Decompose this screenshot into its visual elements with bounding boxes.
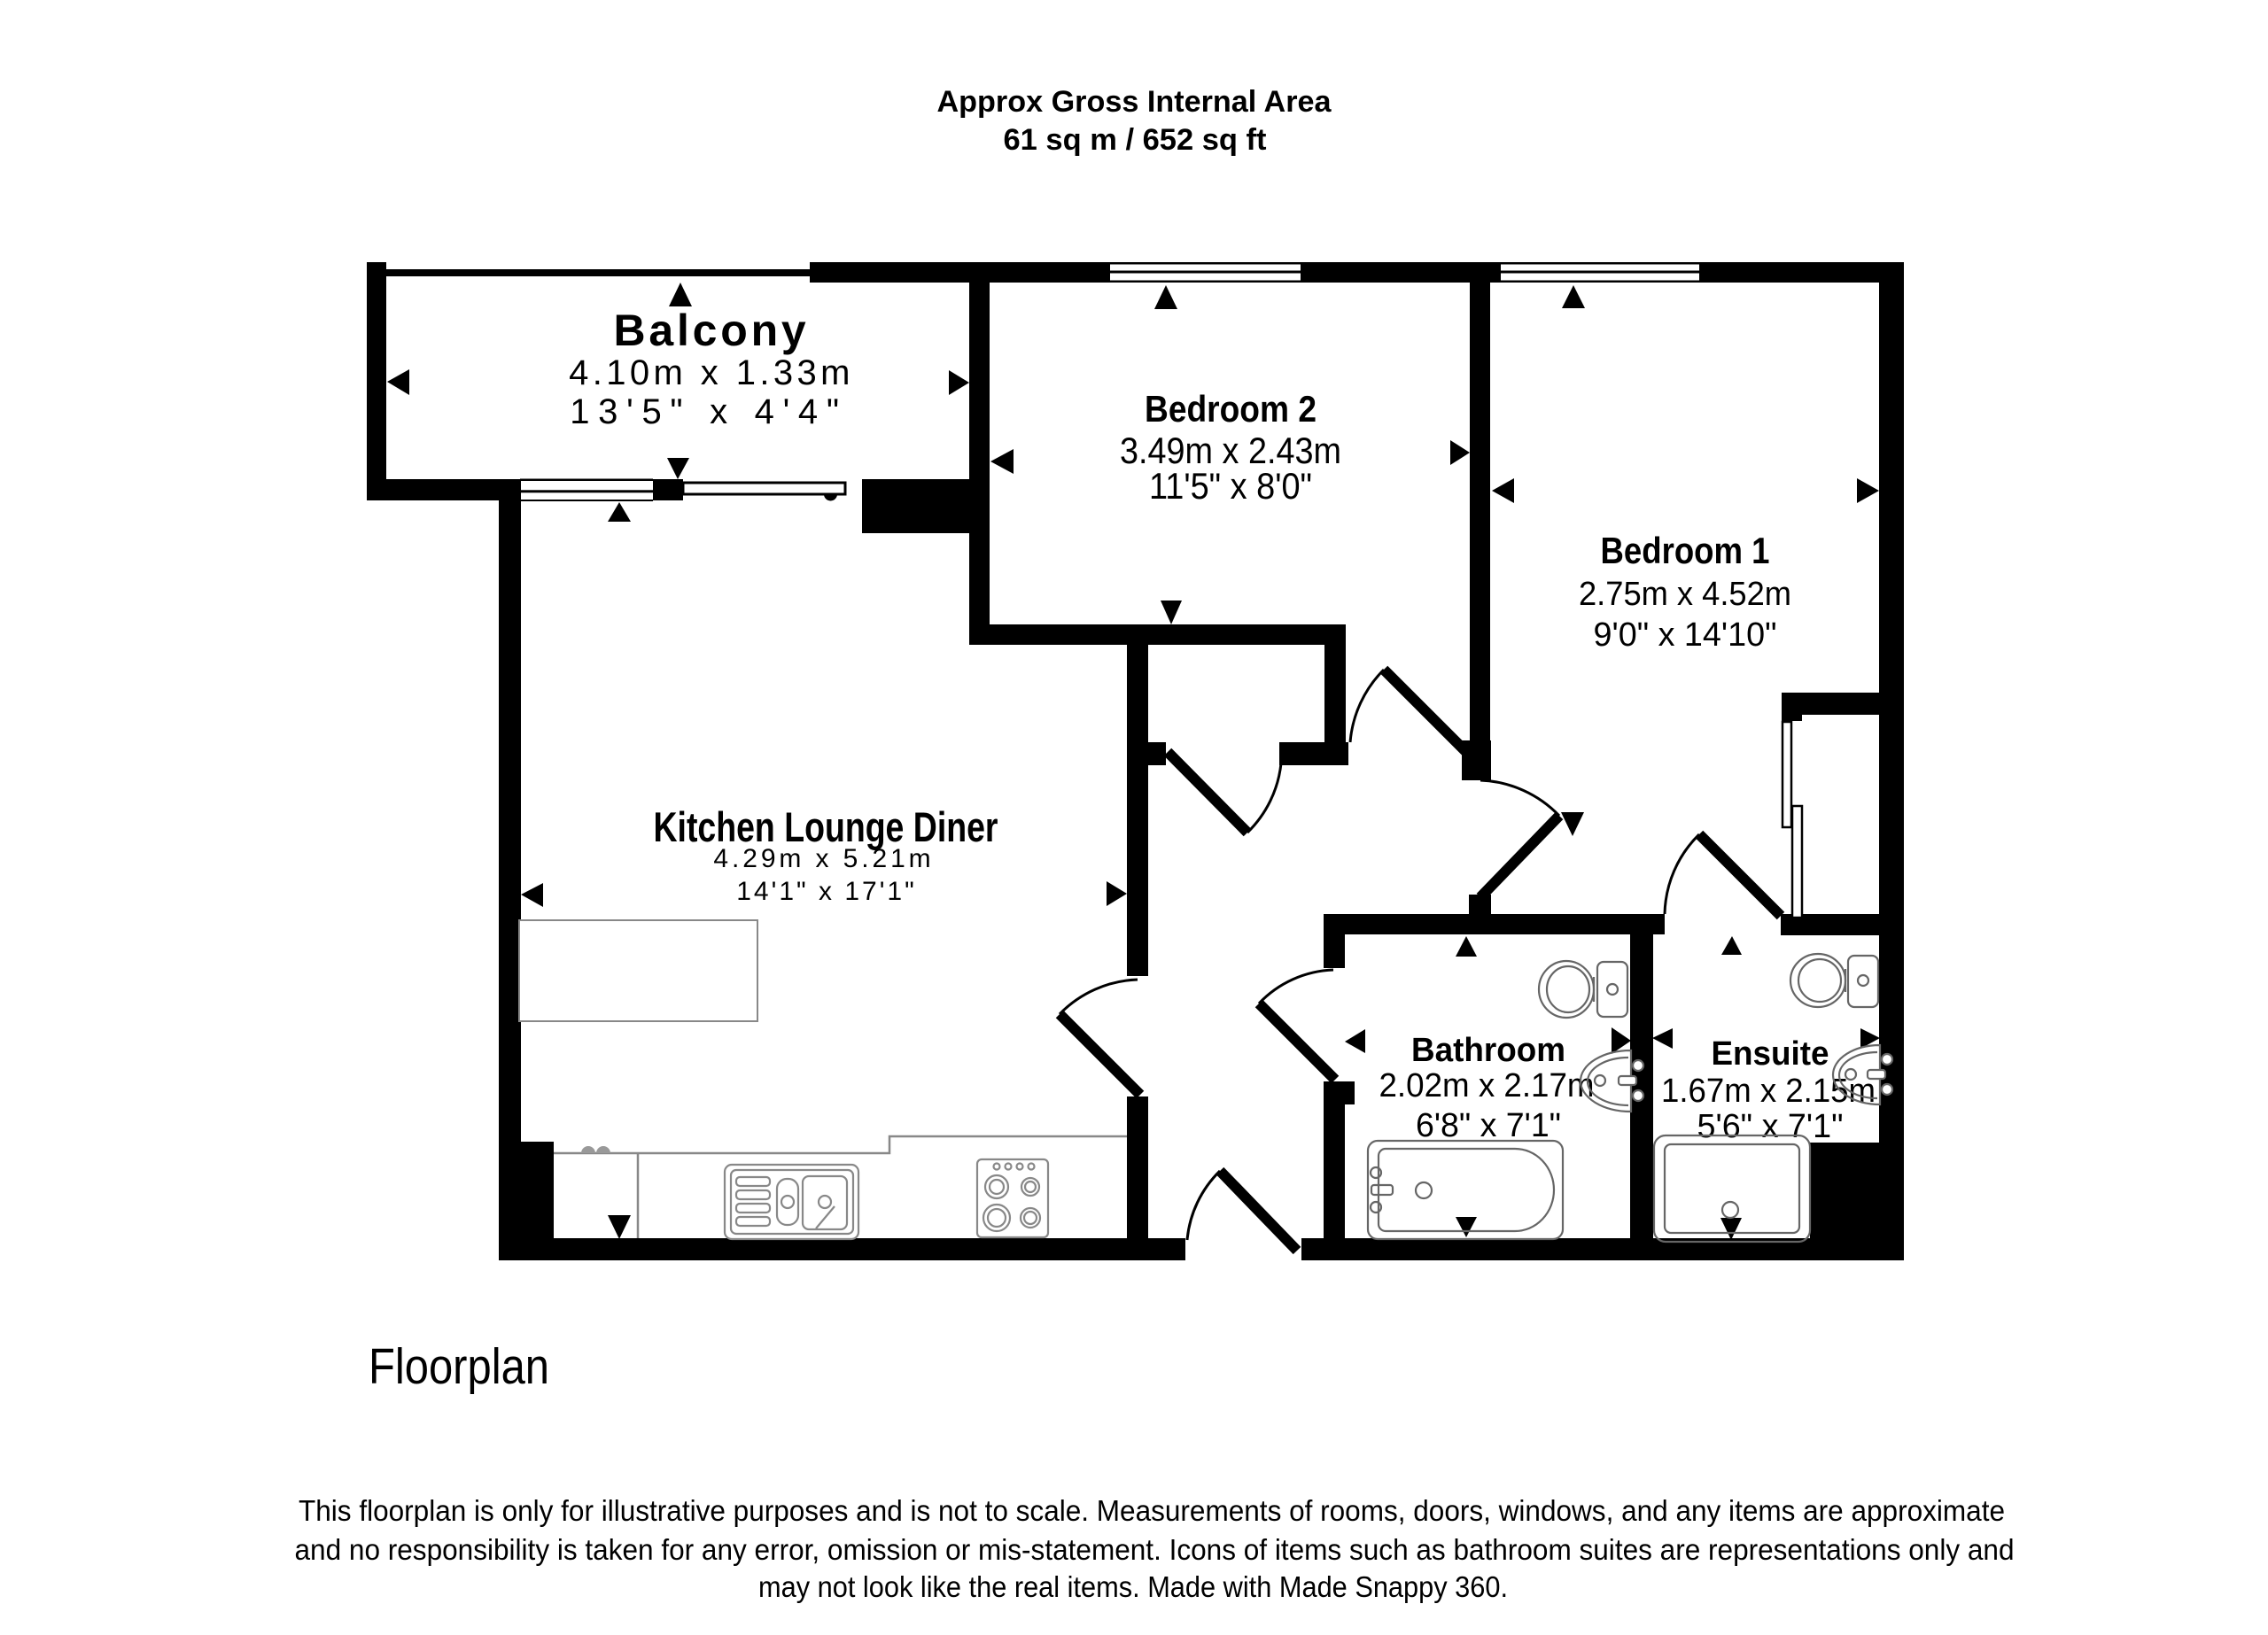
svg-text:6'8" x 7'1": 6'8" x 7'1" bbox=[1416, 1107, 1561, 1144]
svg-text:9'0" x 14'10": 9'0" x 14'10" bbox=[1594, 616, 1777, 654]
svg-text:13'5" x 4'4": 13'5" x 4'4" bbox=[570, 392, 848, 431]
svg-text:61 sq m / 652 sq ft: 61 sq m / 652 sq ft bbox=[1004, 123, 1267, 157]
svg-text:and no responsibility is taken: and no responsibility is taken for any e… bbox=[295, 1533, 2015, 1566]
svg-text:Bathroom: Bathroom bbox=[1411, 1032, 1565, 1069]
svg-text:2.75m x 4.52m: 2.75m x 4.52m bbox=[1579, 576, 1791, 613]
svg-text:2.02m x 2.17m: 2.02m x 2.17m bbox=[1379, 1067, 1595, 1104]
svg-text:Bedroom 1: Bedroom 1 bbox=[1601, 530, 1770, 571]
svg-text:Bedroom 2: Bedroom 2 bbox=[1145, 388, 1317, 430]
svg-text:Balcony: Balcony bbox=[613, 306, 809, 355]
svg-text:11'5" x 8'0": 11'5" x 8'0" bbox=[1149, 465, 1312, 507]
svg-text:Approx Gross Internal Area: Approx Gross Internal Area bbox=[937, 85, 1332, 119]
svg-text:may not look like the real ite: may not look like the real items. Made w… bbox=[758, 1570, 1508, 1603]
svg-text:1.67m x 2.15m: 1.67m x 2.15m bbox=[1661, 1073, 1876, 1110]
svg-text:14'1" x 17'1": 14'1" x 17'1" bbox=[736, 877, 917, 906]
svg-text:5'6" x 7'1": 5'6" x 7'1" bbox=[1697, 1108, 1844, 1145]
svg-text:Floorplan: Floorplan bbox=[369, 1338, 549, 1395]
svg-text:4.29m x 5.21m: 4.29m x 5.21m bbox=[713, 844, 934, 873]
svg-text:4.10m x 1.33m: 4.10m x 1.33m bbox=[569, 353, 854, 392]
svg-text:This floorplan is only for ill: This floorplan is only for illustrative … bbox=[299, 1494, 2005, 1527]
svg-text:Ensuite: Ensuite bbox=[1712, 1035, 1829, 1073]
